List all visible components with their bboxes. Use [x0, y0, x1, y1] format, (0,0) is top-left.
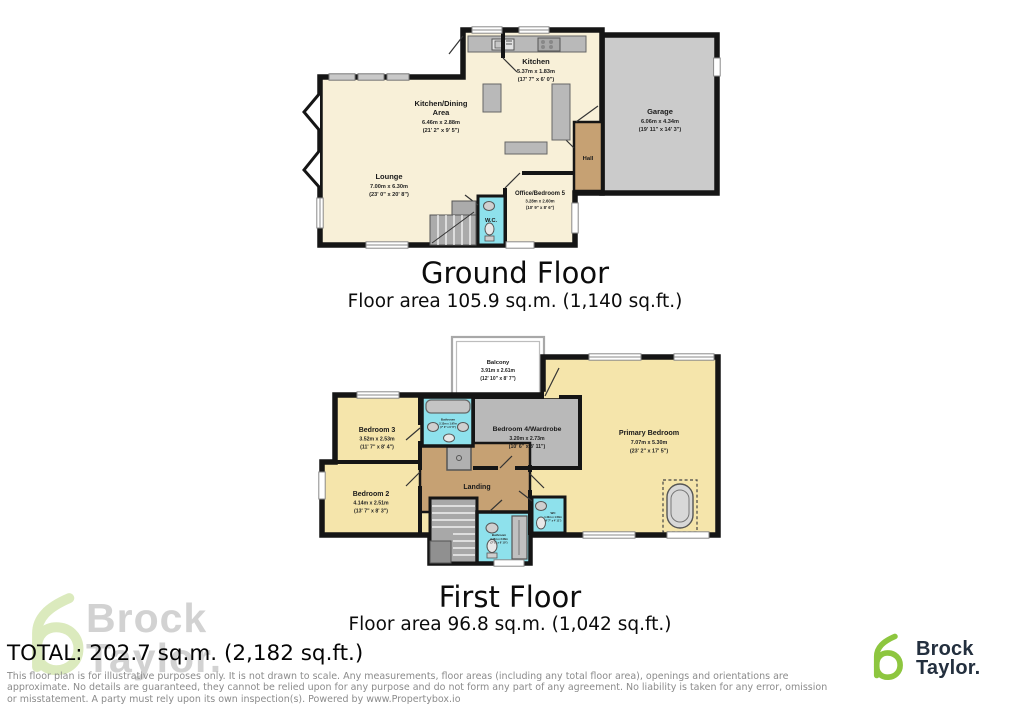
sink-icon: [428, 423, 439, 432]
bedroom2-dim-m: 4.14m x 2.51m: [353, 501, 389, 507]
brand-logo: Brock Taylor.: [866, 633, 980, 685]
hob-ring: [541, 40, 545, 44]
floorplan-page: Kitchen 5.37m x 1.83m (17' 7" x 6' 0") K…: [0, 0, 1029, 720]
brand-b-icon: [866, 633, 910, 685]
balcony-label: Balcony: [487, 360, 510, 366]
counter-low: [505, 142, 547, 154]
brand-logo-text: Brock Taylor.: [916, 640, 980, 678]
bedroom2-label: Bedroom 2: [353, 491, 390, 498]
ground-floor-title: Ground Floor: [300, 256, 730, 290]
primary-label: Primary Bedroom: [619, 428, 679, 437]
brand-watermark-line1: Brock: [86, 598, 222, 638]
hob-icon: [538, 38, 560, 51]
sink-icon: [486, 523, 498, 533]
primary-dim-m: 7.07m x 5.30m: [631, 440, 668, 446]
garage-window: [714, 58, 721, 76]
bathtub-icon: [426, 400, 470, 413]
disclaimer-text: This floor plan is for illustrative purp…: [7, 671, 829, 705]
hob-ring: [549, 40, 553, 44]
kitchen-dining-dim-ft: (21' 2" x 9' 5"): [423, 128, 460, 134]
brand-logo-line2: Taylor.: [916, 659, 980, 678]
bathroom-top-label: Bathroom: [441, 418, 455, 422]
first-floor-plan: Balcony 3.91m x 2.61m (12' 10" x 8' 7") …: [312, 330, 724, 572]
wc-first-label: WC: [551, 511, 557, 515]
lounge-label: Lounge: [375, 172, 402, 181]
bathroom-bottom-dim-m: 2.16m x 2.08m: [490, 537, 508, 541]
office-dim-ft: (10' 9" x 8' 6"): [526, 205, 555, 210]
bedroom4-label: Bedroom 4/Wardrobe: [493, 426, 562, 433]
kitchen-dining-label2: Area: [433, 108, 451, 117]
bathroom-top-dim-m: 2.13m x 1.97m: [439, 422, 457, 426]
bedroom2-dim-ft: (13' 7" x 8' 3"): [354, 509, 388, 515]
wc-first-dim-m: 1.40m x 1.50m: [544, 515, 562, 519]
sink-icon: [458, 423, 469, 432]
shower-icon: [447, 446, 471, 470]
kitchen-dining-dim-m: 6.46m x 2.88m: [422, 120, 460, 126]
lounge-dim-ft: (23' 0" x 20' 8"): [369, 192, 409, 198]
brand-watermark-text: Brock Taylor.: [86, 598, 222, 678]
wc-cistern: [485, 236, 494, 241]
kitchen-label: Kitchen: [522, 57, 550, 66]
garage-dim-ft: (19' 11" x 14' 3"): [639, 127, 682, 133]
stairs-landing: [430, 541, 451, 563]
primary-dim-ft: (23' 2" x 17' 5"): [630, 449, 668, 455]
lounge-dim-m: 7.00m x 6.30m: [370, 184, 408, 190]
ground-floor-plan: Kitchen 5.37m x 1.83m (17' 7" x 6' 0") K…: [298, 20, 730, 260]
counter-tall: [552, 84, 570, 140]
office-dim-m: 3.28m x 2.60m: [525, 199, 554, 204]
stairs: [430, 215, 476, 245]
wc-sink-icon: [484, 202, 495, 211]
first-floor-title: First Floor: [295, 580, 725, 614]
bedroom4-dim-m: 3.20m x 2.73m: [509, 436, 545, 442]
hall-label: Hall: [583, 156, 594, 162]
kitchen-counter: [468, 36, 586, 52]
wc-label: W.C.: [485, 218, 498, 224]
total-area-text: TOTAL: 202.7 sq.m. (2,182 sq.ft.): [7, 641, 363, 666]
hob-ring: [541, 45, 545, 49]
sink-icon: [536, 502, 547, 511]
first-floor-area: Floor area 96.8 sq.m. (1,042 sq.ft.): [295, 614, 725, 635]
bathroom-top-dim-ft: (7' 0" x 6' 6"): [440, 425, 456, 429]
kitchen-dim-m: 5.37m x 1.83m: [517, 69, 555, 75]
toilet-icon: [485, 223, 494, 235]
bedroom4-dim-ft: (10' 6" x 8' 11"): [509, 444, 546, 450]
counter-island: [483, 84, 501, 112]
garage-label: Garage: [647, 107, 673, 116]
kitchen-dim-ft: (17' 7" x 6' 0"): [518, 77, 555, 83]
wc-first-dim-ft: (4' 7" x 4' 11"): [545, 519, 562, 523]
toilet-icon: [444, 434, 455, 442]
garage-dim-m: 6.06m x 4.34m: [641, 119, 679, 125]
bathroom-bottom-label: Bathroom: [492, 533, 506, 537]
balcony-dim-m: 3.91m x 2.61m: [481, 368, 515, 374]
landing-label: Landing: [463, 484, 490, 491]
bedroom3-dim-m: 3.52m x 2.53m: [359, 437, 395, 443]
balcony-dim-ft: (12' 10" x 8' 7"): [480, 376, 516, 382]
bathroom-bottom-dim-ft: (7' 1" x 6' 10"): [491, 541, 508, 545]
kitchen-dining-label: Kitchen/Dining: [415, 99, 468, 108]
bedroom3-label: Bedroom 3: [359, 427, 396, 434]
bedroom3-dim-ft: (11' 7" x 8' 4"): [360, 445, 394, 451]
office-label: Office/Bedroom 5: [515, 191, 566, 197]
hob-ring: [549, 45, 553, 49]
ground-floor-area: Floor area 105.9 sq.m. (1,140 sq.ft.): [300, 291, 730, 312]
cistern: [487, 553, 497, 558]
